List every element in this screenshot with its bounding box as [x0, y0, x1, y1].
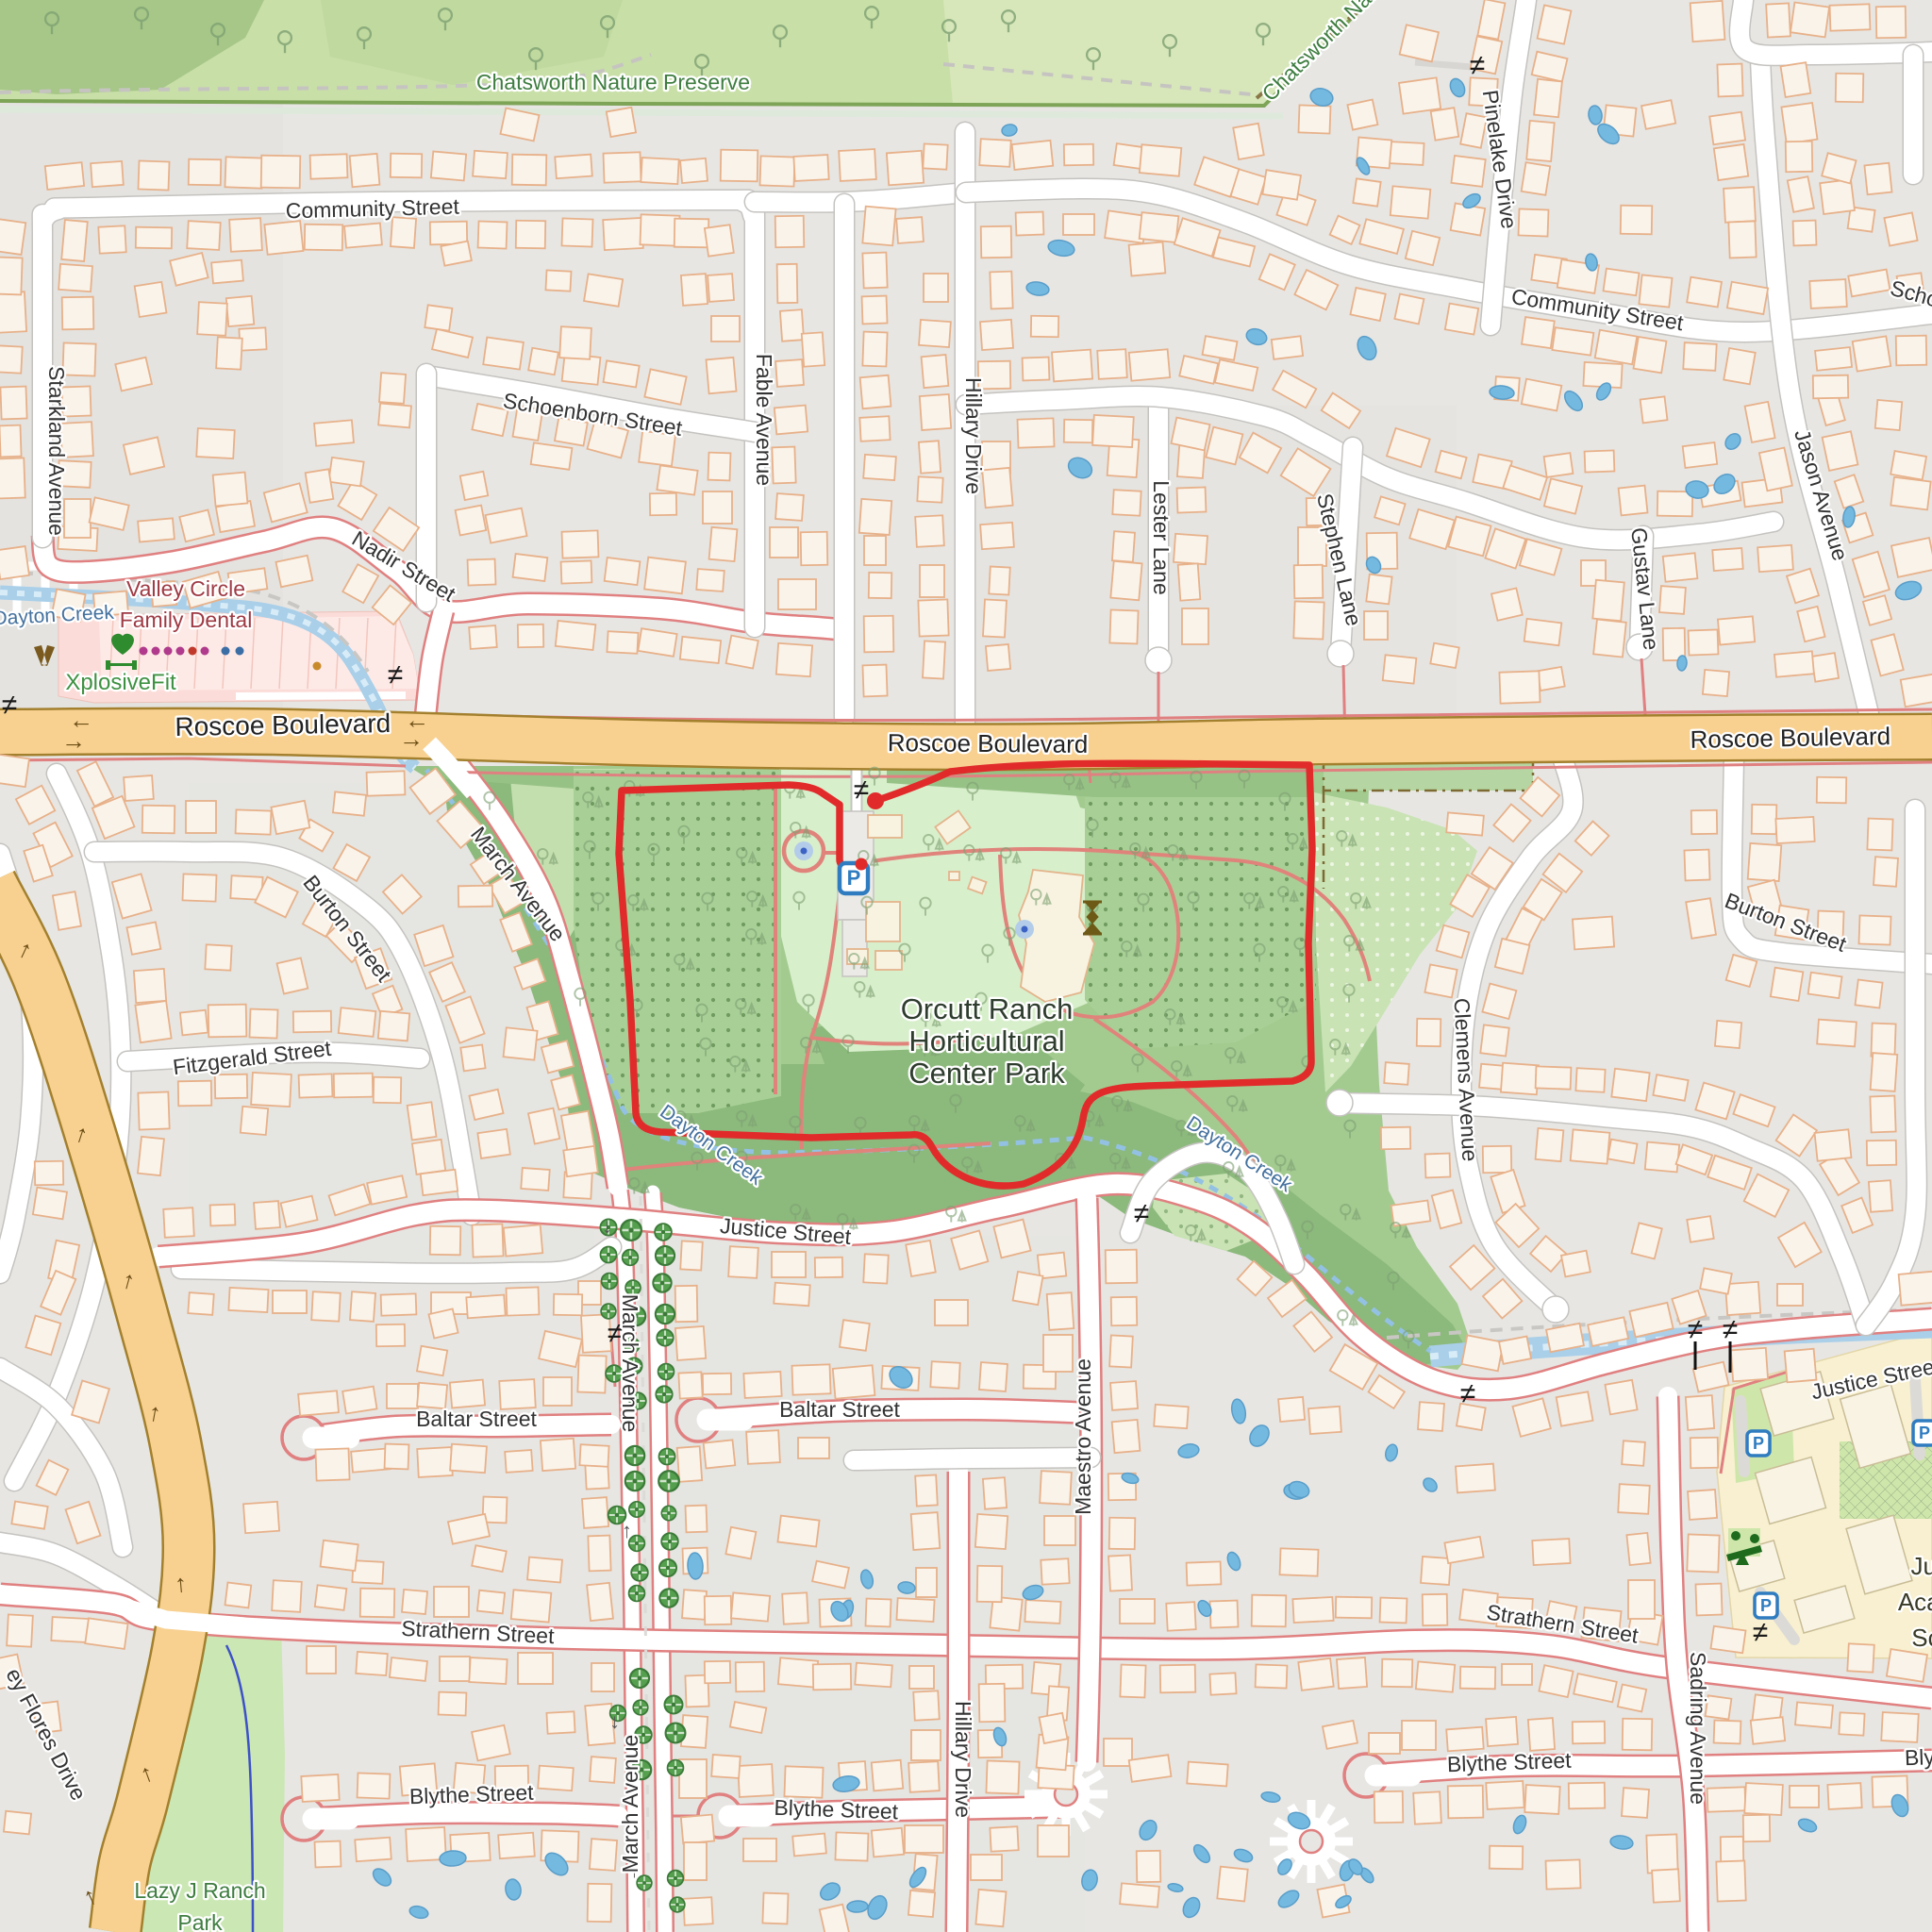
svg-text:Academy: Academy — [1898, 1588, 1932, 1616]
svg-text:March Avenue: March Avenue — [618, 1735, 642, 1874]
svg-text:Blythe Street: Blythe Street — [408, 1780, 534, 1809]
svg-text:≠: ≠ — [1134, 1198, 1149, 1229]
svg-text:Starkland Avenue: Starkland Avenue — [44, 366, 69, 536]
svg-text:Maestro Avenue: Maestro Avenue — [1071, 1358, 1095, 1515]
svg-text:Roscoe Boulevard: Roscoe Boulevard — [175, 708, 391, 741]
svg-text:Hillary Drive: Hillary Drive — [961, 377, 986, 494]
svg-text:Center Park: Center Park — [908, 1057, 1065, 1090]
svg-text:P: P — [1760, 1596, 1772, 1615]
svg-text:Orcutt Ranch: Orcutt Ranch — [901, 992, 1074, 1025]
svg-text:Blythe Street: Blythe Street — [1446, 1748, 1572, 1777]
svg-text:School: School — [1911, 1624, 1932, 1652]
svg-text:→: → — [607, 1712, 630, 1733]
svg-text:Roscoe Boulevard: Roscoe Boulevard — [888, 728, 1089, 758]
svg-text:→: → — [61, 726, 86, 755]
svg-text:Lester Lane: Lester Lane — [1149, 480, 1174, 594]
svg-text:≠: ≠ — [2, 690, 17, 721]
svg-text:Blythe Street: Blythe Street — [774, 1795, 899, 1824]
svg-text:P: P — [1919, 1424, 1930, 1442]
svg-text:→: → — [399, 724, 424, 753]
svg-text:Roscoe Boulevard: Roscoe Boulevard — [1690, 722, 1890, 754]
svg-text:Blythe Street: Blythe Street — [1904, 1741, 1932, 1771]
svg-text:Fable Avenue: Fable Avenue — [752, 354, 776, 486]
svg-text:Community Street: Community Street — [285, 194, 459, 224]
svg-text:Family Dental: Family Dental — [120, 608, 253, 632]
svg-text:≠: ≠ — [1470, 50, 1485, 81]
svg-text:→: → — [134, 1399, 166, 1428]
svg-text:March Avenue: March Avenue — [618, 1294, 642, 1433]
svg-text:→: → — [599, 1217, 623, 1238]
svg-text:Chatsworth Nature Preserve: Chatsworth Nature Preserve — [476, 70, 750, 94]
svg-text:Hillary Drive: Hillary Drive — [951, 1701, 975, 1818]
svg-text:Justice: Justice — [1911, 1552, 1932, 1580]
svg-text:Baltar Street: Baltar Street — [779, 1397, 900, 1422]
svg-text:Lazy J Ranch: Lazy J Ranch — [134, 1878, 265, 1903]
svg-text:Horticultural: Horticultural — [908, 1024, 1064, 1058]
svg-text:≠: ≠ — [1460, 1378, 1475, 1409]
svg-text:XplosiveFit: XplosiveFit — [65, 670, 176, 695]
svg-text:→: → — [611, 1522, 635, 1542]
svg-text:Park: Park — [177, 1910, 223, 1932]
svg-text:→: → — [161, 1573, 192, 1600]
svg-text:≠: ≠ — [388, 659, 403, 691]
svg-text:≠: ≠ — [854, 774, 869, 806]
svg-text:P: P — [1753, 1434, 1764, 1453]
svg-text:Valley Circle: Valley Circle — [126, 576, 245, 601]
svg-text:≠: ≠ — [1753, 1617, 1768, 1648]
svg-text:Baltar Street: Baltar Street — [416, 1407, 537, 1431]
svg-text:≠: ≠ — [1723, 1314, 1738, 1345]
svg-text:≠: ≠ — [1688, 1314, 1703, 1345]
svg-text:Sadring Avenue: Sadring Avenue — [1686, 1652, 1710, 1805]
